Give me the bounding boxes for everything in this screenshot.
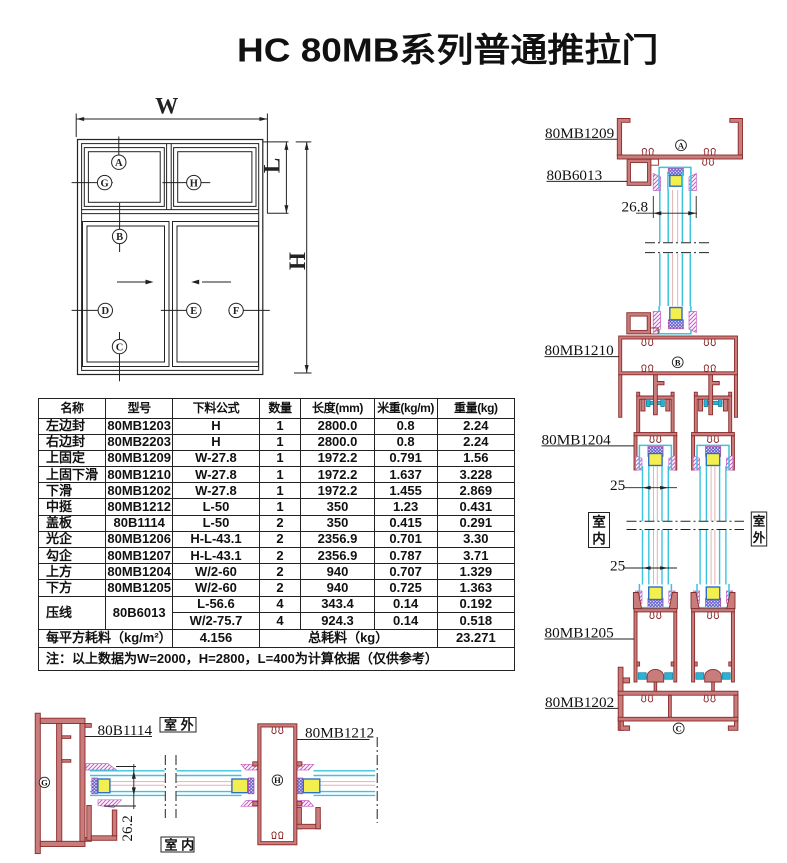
svg-text:25: 25: [610, 477, 625, 494]
svg-text:26.2: 26.2: [120, 815, 136, 841]
svg-text:B: B: [675, 357, 681, 367]
svg-text:80MB1212: 80MB1212: [305, 725, 374, 742]
svg-text:25: 25: [610, 557, 625, 574]
svg-text:C: C: [676, 723, 682, 733]
svg-text:A: A: [678, 140, 685, 150]
svg-text:室: 室: [592, 514, 606, 530]
svg-text:室: 室: [753, 514, 766, 529]
svg-text:外: 外: [752, 530, 766, 545]
svg-text:G: G: [41, 777, 48, 787]
svg-text:室 外: 室 外: [164, 718, 194, 733]
svg-text:26.8: 26.8: [622, 199, 649, 216]
svg-text:H: H: [274, 775, 281, 785]
svg-text:内: 内: [592, 531, 606, 547]
svg-text:室 内: 室 内: [165, 838, 195, 853]
